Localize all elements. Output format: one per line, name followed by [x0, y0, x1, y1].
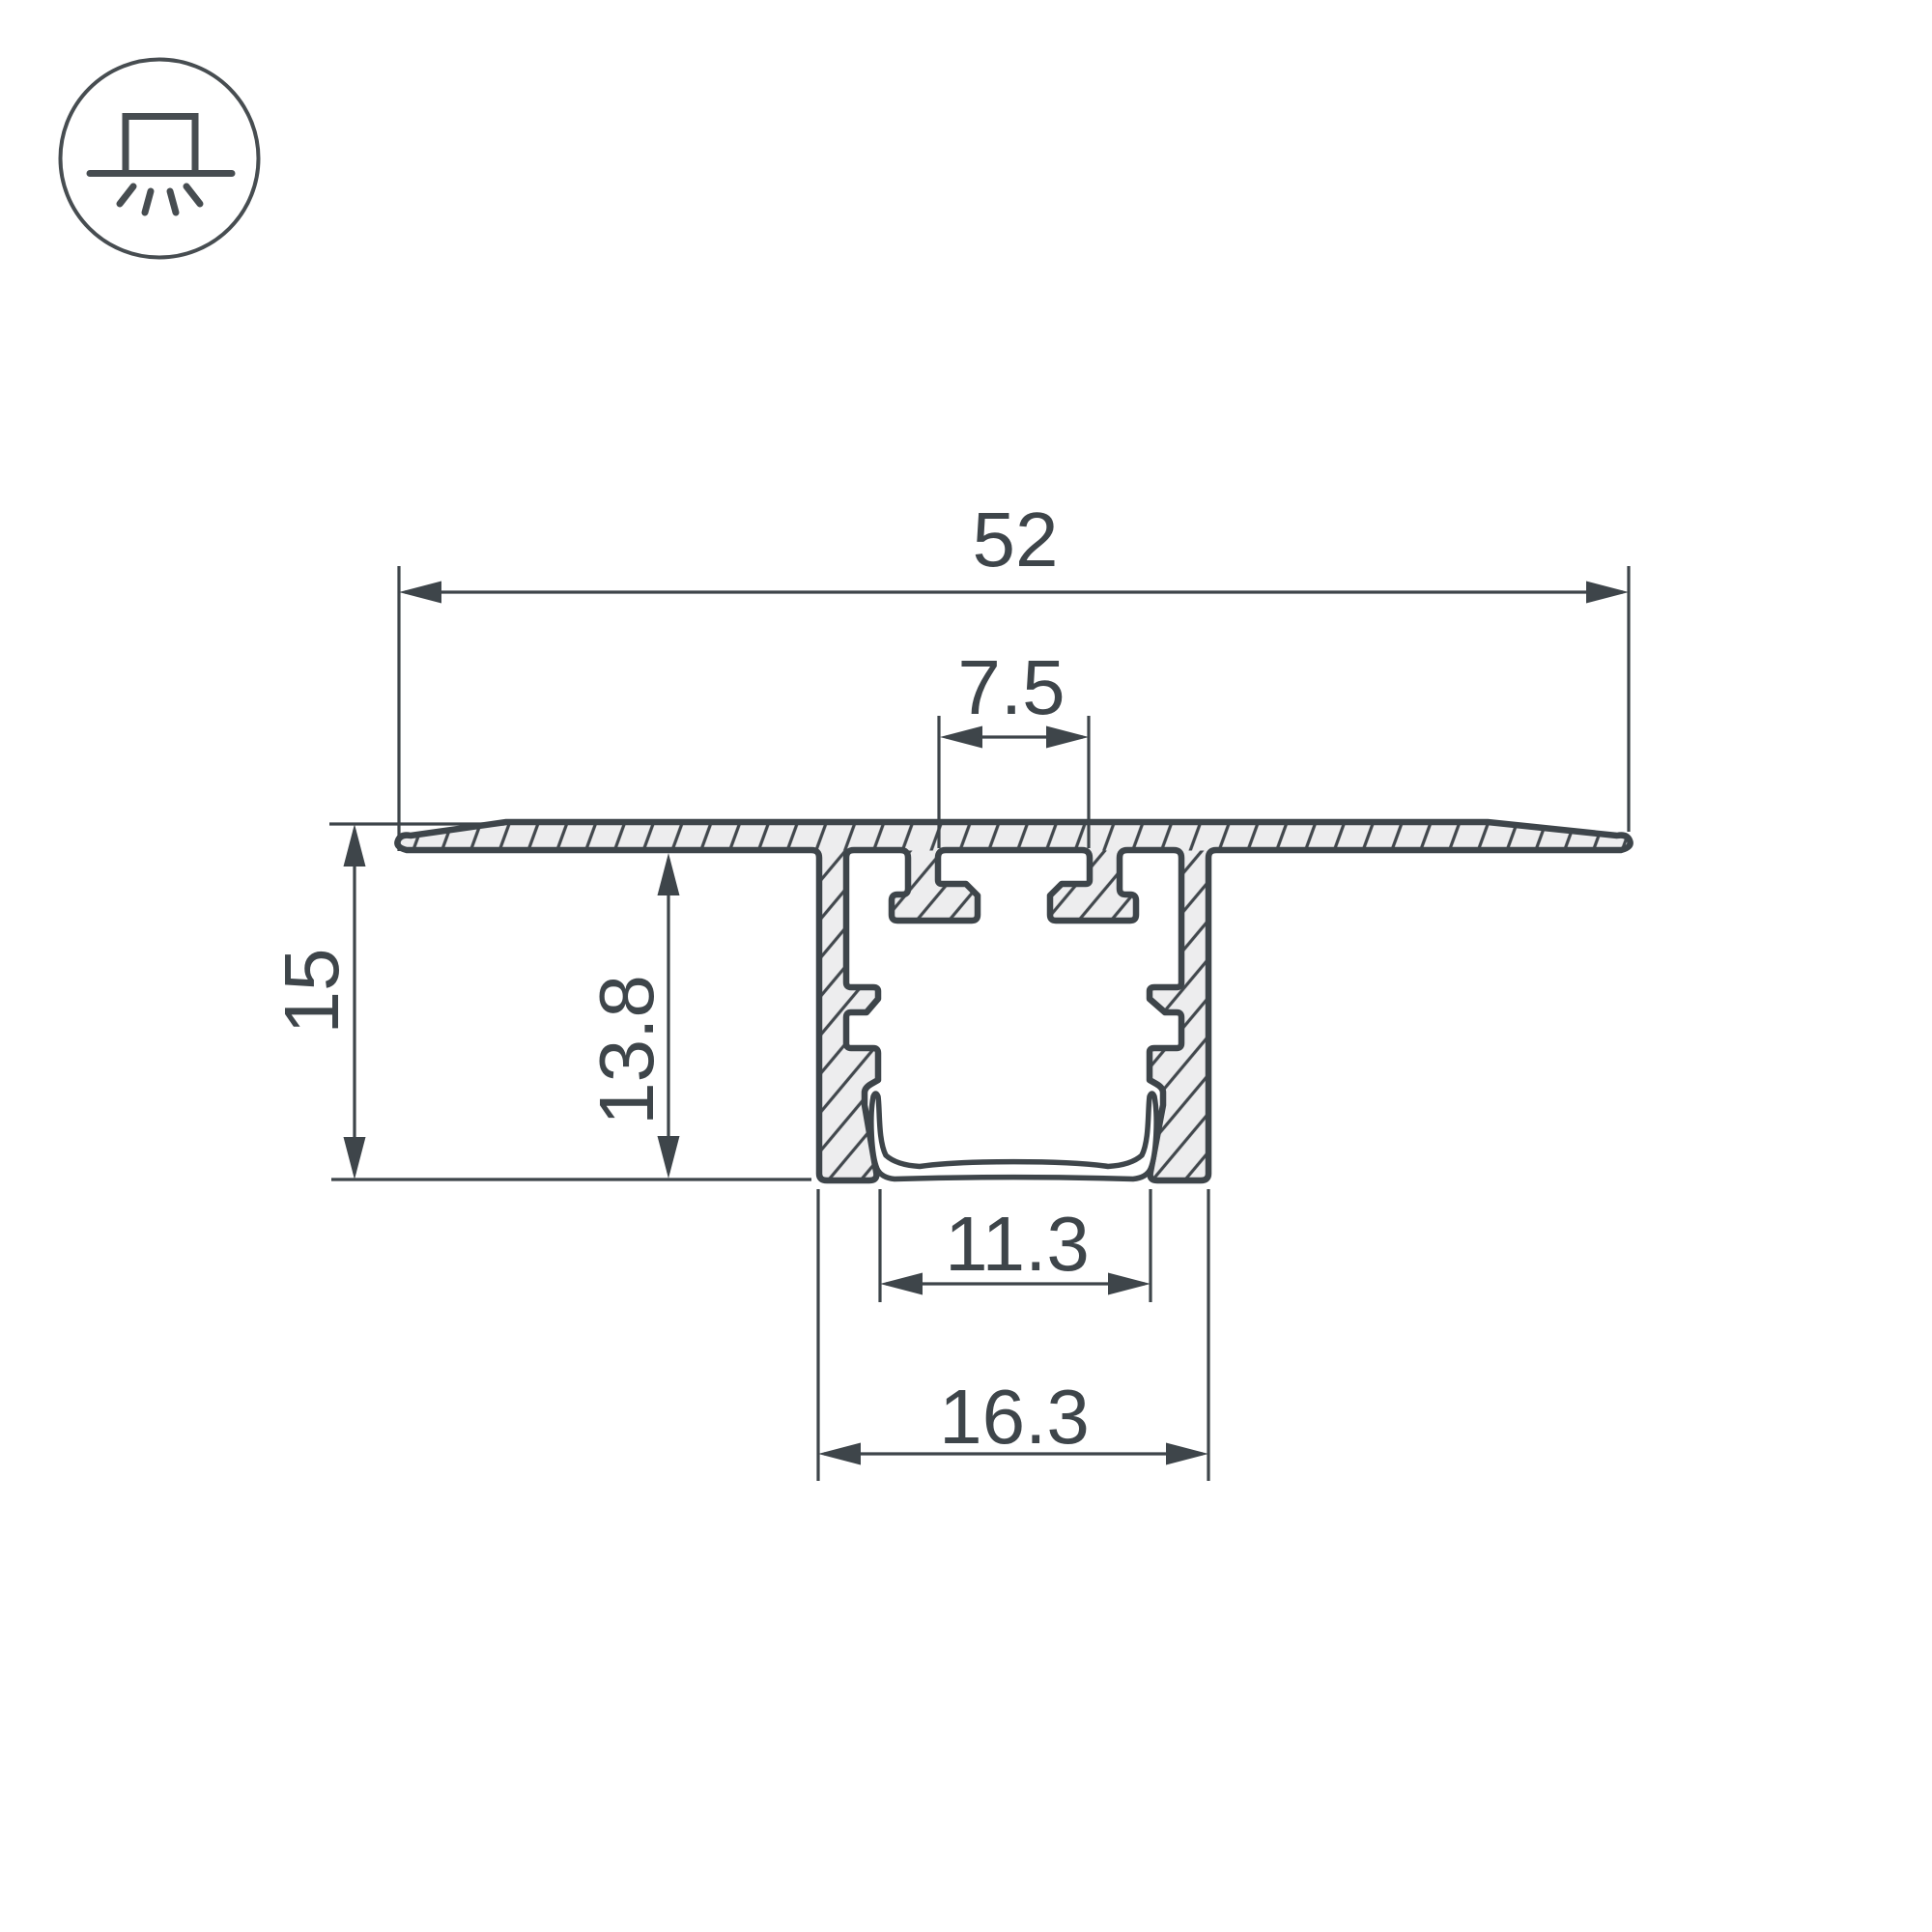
svg-text:52: 52 — [973, 497, 1059, 582]
svg-text:16.3: 16.3 — [939, 1374, 1090, 1460]
svg-text:11.3: 11.3 — [945, 1201, 1090, 1287]
svg-text:15: 15 — [269, 949, 355, 1035]
svg-text:13.8: 13.8 — [583, 975, 669, 1125]
svg-text:7.5: 7.5 — [957, 644, 1065, 730]
